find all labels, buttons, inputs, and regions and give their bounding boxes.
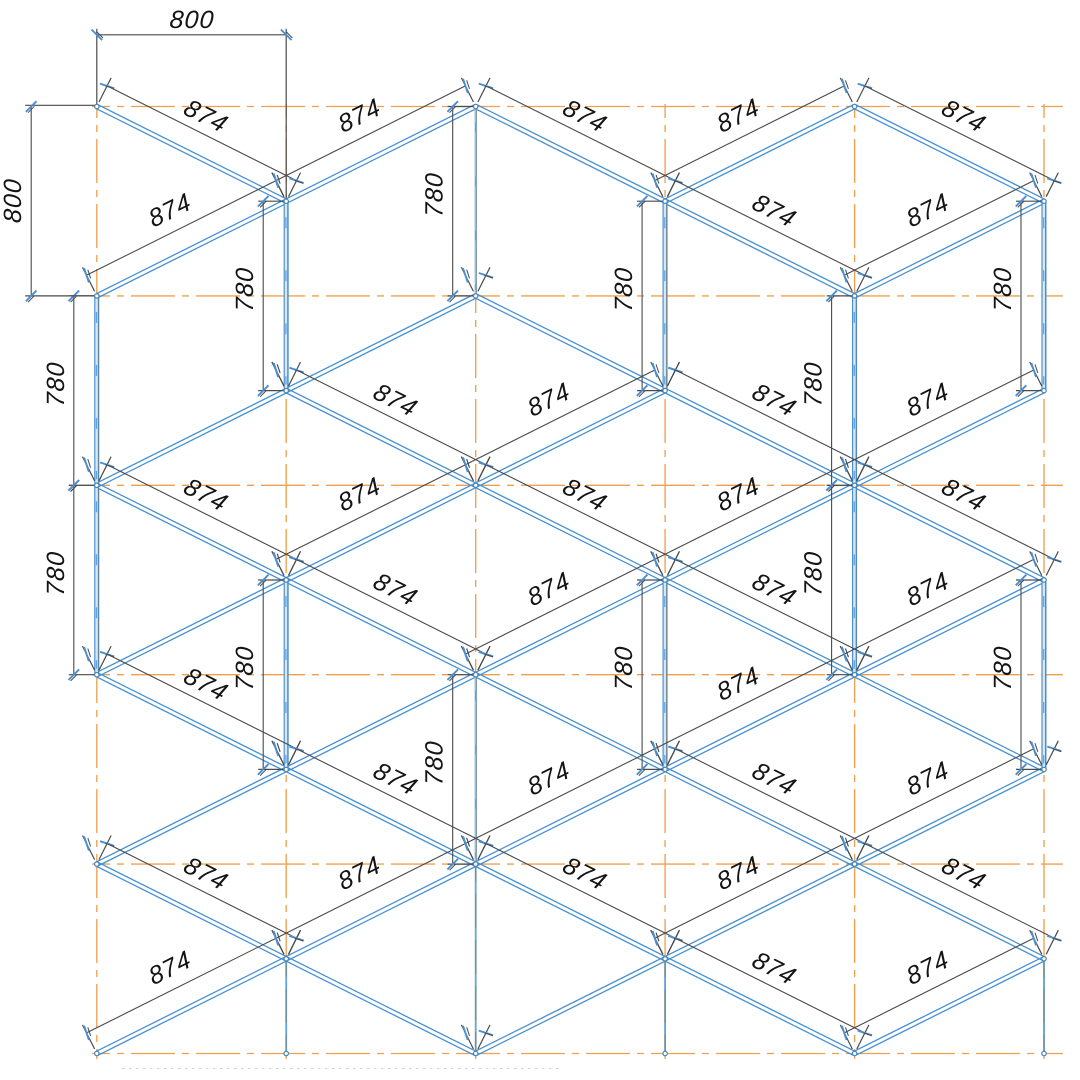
svg-text:874: 874 xyxy=(937,852,991,896)
svg-text:874: 874 xyxy=(368,757,422,801)
svg-text:874: 874 xyxy=(524,566,575,612)
svg-text:874: 874 xyxy=(179,662,233,706)
svg-text:780: 780 xyxy=(421,171,449,218)
svg-text:874: 874 xyxy=(179,473,233,517)
svg-text:780: 780 xyxy=(610,645,638,692)
svg-text:874: 874 xyxy=(747,947,801,991)
svg-text:874: 874 xyxy=(524,756,575,802)
svg-text:780: 780 xyxy=(800,550,828,597)
svg-text:874: 874 xyxy=(903,377,954,423)
svg-text:874: 874 xyxy=(937,473,991,517)
svg-text:780: 780 xyxy=(231,266,259,313)
svg-text:874: 874 xyxy=(713,661,764,707)
svg-text:780: 780 xyxy=(610,266,638,313)
svg-text:874: 874 xyxy=(713,472,764,518)
svg-text:874: 874 xyxy=(334,93,385,139)
svg-text:874: 874 xyxy=(179,852,233,896)
svg-text:800: 800 xyxy=(169,6,216,34)
svg-text:874: 874 xyxy=(145,945,196,991)
svg-text:874: 874 xyxy=(334,850,385,896)
svg-text:874: 874 xyxy=(334,472,385,518)
svg-text:874: 874 xyxy=(179,94,233,138)
svg-text:874: 874 xyxy=(903,188,954,234)
svg-text:874: 874 xyxy=(558,852,612,896)
svg-text:874: 874 xyxy=(937,94,991,138)
svg-text:874: 874 xyxy=(145,188,196,234)
svg-text:874: 874 xyxy=(368,378,422,422)
svg-text:800: 800 xyxy=(0,177,27,224)
svg-text:874: 874 xyxy=(747,568,801,612)
svg-text:780: 780 xyxy=(800,361,828,408)
svg-text:874: 874 xyxy=(713,850,764,896)
svg-text:780: 780 xyxy=(989,645,1017,692)
svg-text:874: 874 xyxy=(903,945,954,991)
svg-text:780: 780 xyxy=(42,361,70,408)
svg-text:874: 874 xyxy=(713,93,764,139)
svg-text:780: 780 xyxy=(421,740,449,787)
svg-text:874: 874 xyxy=(747,189,801,233)
svg-text:874: 874 xyxy=(368,568,422,612)
svg-text:874: 874 xyxy=(524,377,575,423)
svg-text:874: 874 xyxy=(903,566,954,612)
svg-text:874: 874 xyxy=(558,473,612,517)
svg-text:874: 874 xyxy=(558,94,612,138)
svg-text:780: 780 xyxy=(42,550,70,597)
svg-text:780: 780 xyxy=(231,645,259,692)
svg-text:874: 874 xyxy=(747,757,801,801)
svg-text:874: 874 xyxy=(903,756,954,802)
svg-text:780: 780 xyxy=(989,266,1017,313)
svg-text:874: 874 xyxy=(747,378,801,422)
